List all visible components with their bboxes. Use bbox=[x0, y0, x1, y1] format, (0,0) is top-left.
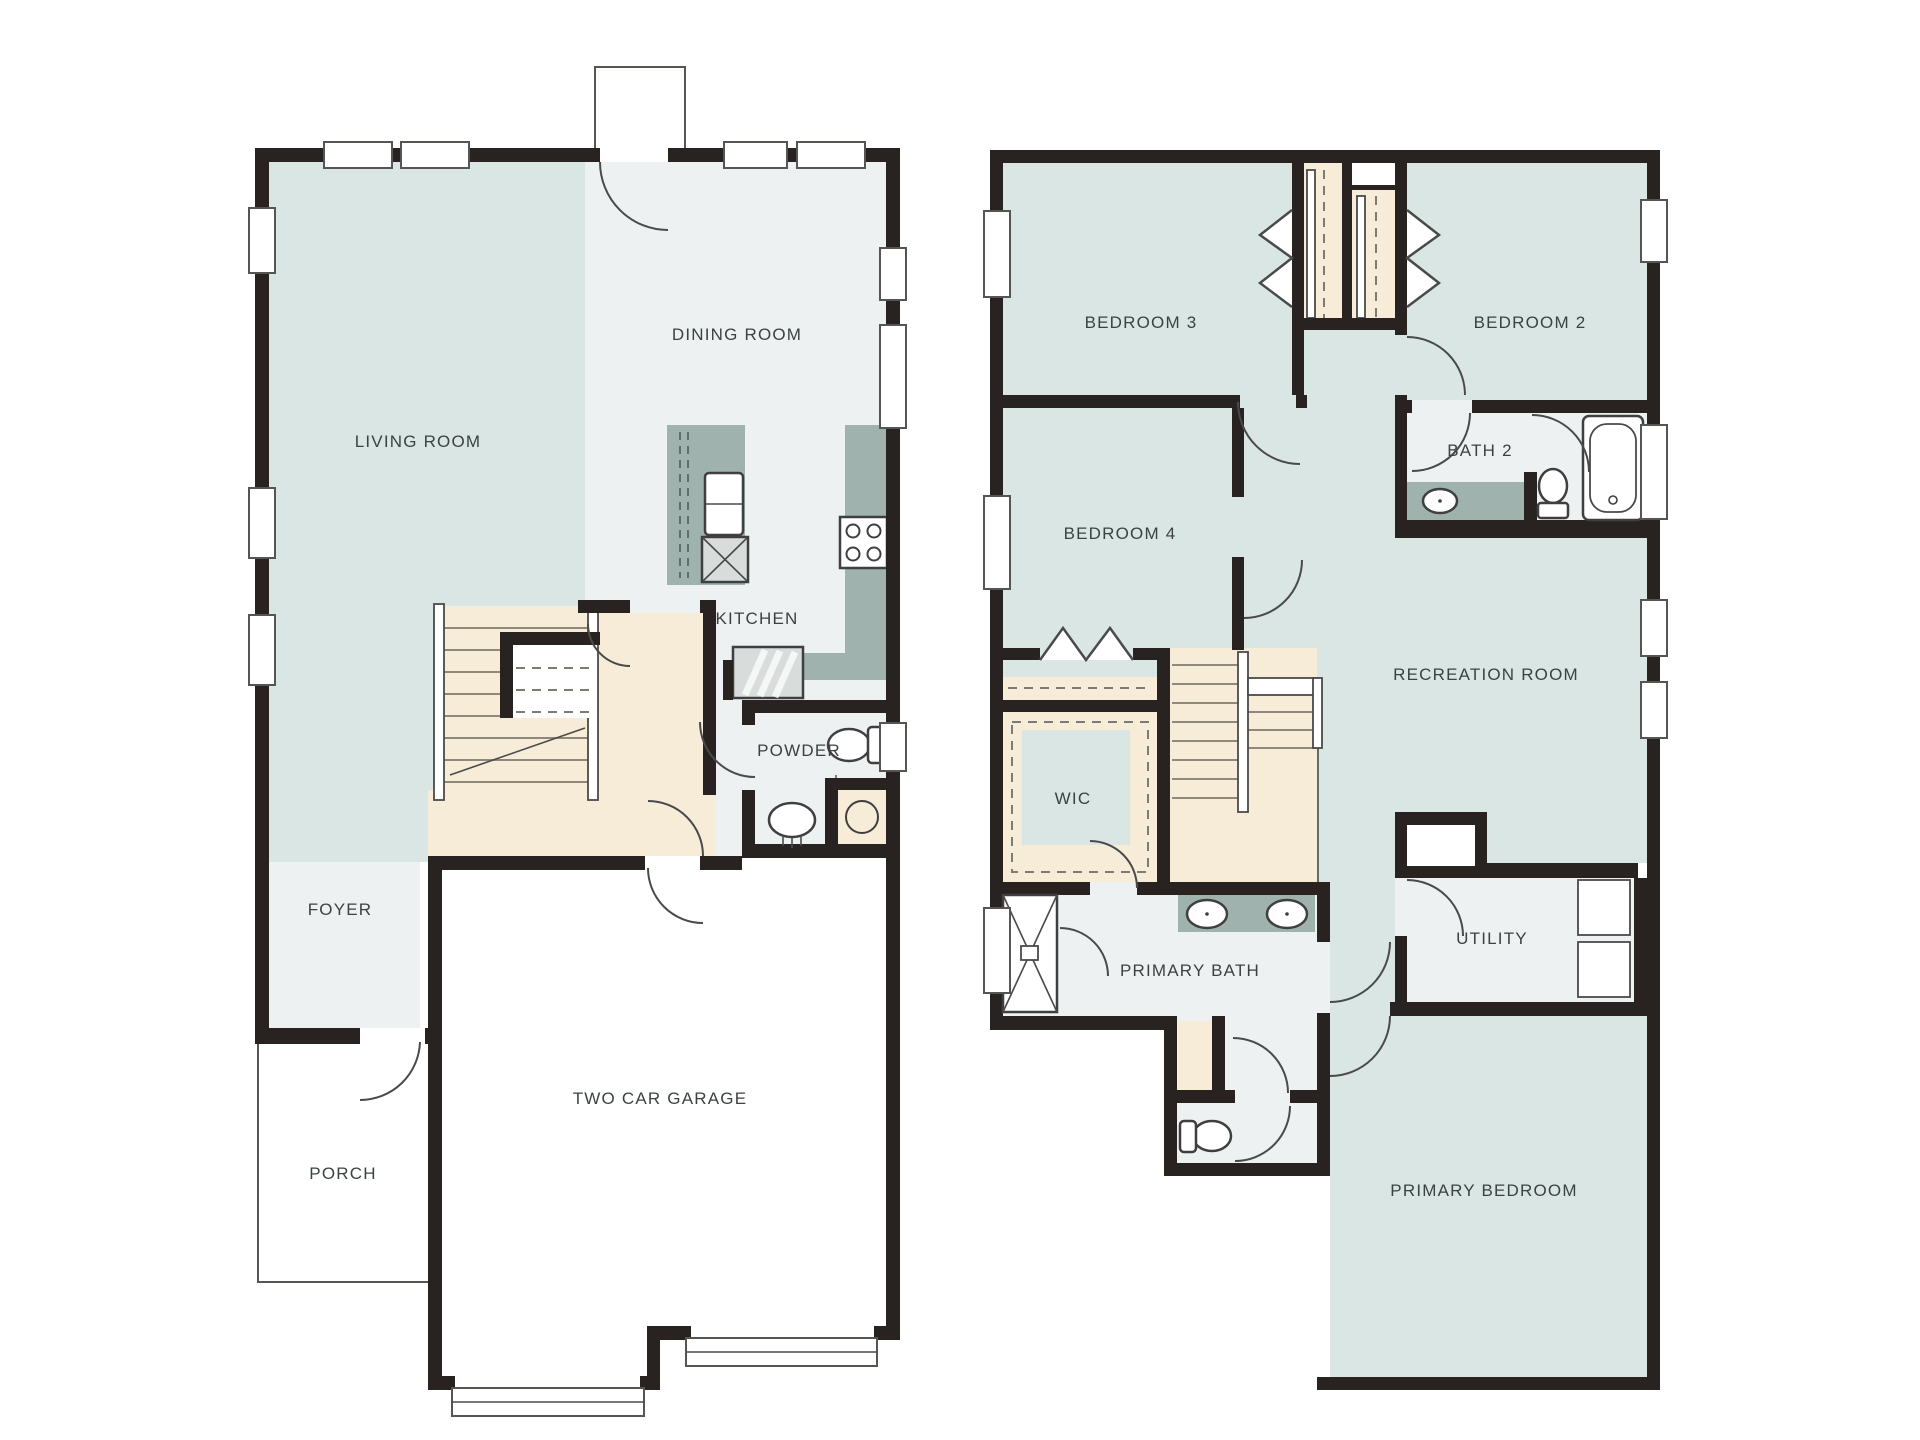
porch-label: PORCH bbox=[309, 1164, 376, 1183]
stair-open-rail bbox=[1313, 678, 1322, 748]
bathtub-basin bbox=[1590, 424, 1636, 512]
utility-label: UTILITY bbox=[1456, 929, 1528, 948]
stair-stringer bbox=[1238, 652, 1248, 812]
porch-outline bbox=[258, 1042, 430, 1282]
hall-area bbox=[1244, 408, 1395, 520]
bedroom3-label: BEDROOM 3 bbox=[1085, 313, 1198, 332]
dining-room-label: DINING ROOM bbox=[672, 325, 802, 344]
recreation-area bbox=[1244, 520, 1647, 648]
first-floor-room-fills bbox=[262, 162, 886, 1028]
primary-bedroom-label: PRIMARY BEDROOM bbox=[1390, 1181, 1577, 1200]
bedroom4-label: BEDROOM 4 bbox=[1064, 524, 1177, 543]
bedroom3-area bbox=[1003, 163, 1292, 395]
shower bbox=[1003, 895, 1057, 1012]
primary-bath-label: PRIMARY BATH bbox=[1120, 961, 1260, 980]
closet-rod bbox=[1357, 196, 1365, 318]
toilet bbox=[1193, 1121, 1231, 1151]
floorplan-drawing: LIVING ROOM DINING ROOM KITCHEN POWDER F… bbox=[0, 0, 1920, 1440]
water-heater bbox=[846, 801, 878, 833]
pedestal-sink bbox=[769, 803, 815, 837]
garage-label: TWO CAR GARAGE bbox=[573, 1089, 748, 1108]
understair-closet bbox=[513, 645, 595, 718]
bath2-label: BATH 2 bbox=[1447, 441, 1512, 460]
stair-top-band bbox=[1248, 678, 1317, 695]
wic-label: WIC bbox=[1055, 789, 1092, 808]
bedroom2-area bbox=[1407, 163, 1647, 400]
toilet-tank bbox=[1538, 503, 1568, 518]
foyer-label: FOYER bbox=[308, 900, 373, 919]
second-floor-plan: BEDROOM 3 BEDROOM 2 BEDROOM 4 BATH 2 REC… bbox=[984, 150, 1667, 1390]
cooktop bbox=[840, 517, 887, 568]
wic-floor bbox=[1022, 730, 1130, 845]
toilet bbox=[1539, 469, 1567, 503]
recreation-area bbox=[1487, 812, 1647, 863]
first-floor-plan: LIVING ROOM DINING ROOM KITCHEN POWDER F… bbox=[249, 67, 906, 1416]
closet-rod bbox=[1307, 170, 1315, 318]
living-room-label: LIVING ROOM bbox=[355, 432, 482, 451]
linen-closet bbox=[1178, 1021, 1212, 1090]
bedroom4-closet bbox=[1003, 660, 1157, 677]
recreation-room-label: RECREATION ROOM bbox=[1393, 665, 1579, 684]
floorplan-canvas: LIVING ROOM DINING ROOM KITCHEN POWDER F… bbox=[0, 0, 1920, 1440]
stair-stringer bbox=[434, 604, 444, 800]
rear-stoop-outline bbox=[595, 67, 685, 150]
powder-label: POWDER bbox=[757, 741, 841, 760]
stair-landing bbox=[598, 613, 703, 790]
dryer bbox=[1578, 942, 1630, 997]
kitchen-label: KITCHEN bbox=[715, 609, 798, 628]
bedroom2-label: BEDROOM 2 bbox=[1474, 313, 1587, 332]
hall-area bbox=[1304, 330, 1395, 408]
toilet-tank bbox=[1180, 1121, 1196, 1152]
refrigerator bbox=[733, 647, 803, 698]
washer bbox=[1578, 880, 1630, 935]
foyer-area bbox=[262, 862, 420, 1028]
utility-chase bbox=[1407, 825, 1475, 866]
